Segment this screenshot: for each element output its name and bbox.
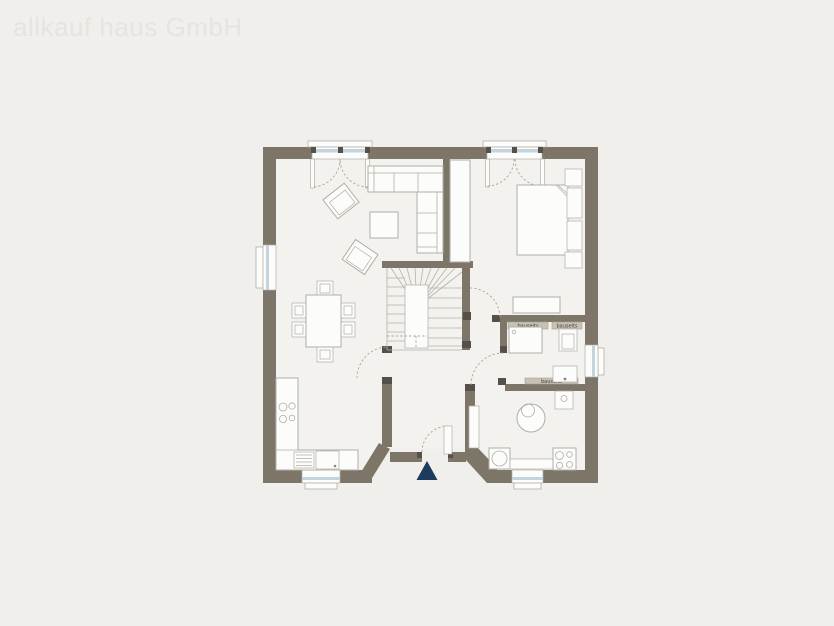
dining-chair xyxy=(341,322,355,337)
window-left-wall xyxy=(256,245,276,290)
window-bottom-utility xyxy=(512,470,543,489)
shower xyxy=(509,327,542,353)
utility-door-leaf xyxy=(469,406,479,448)
small-sink-unit xyxy=(555,391,573,409)
kitchen-sink xyxy=(294,451,339,469)
front-door-leaf xyxy=(444,426,452,454)
dining-chair xyxy=(317,281,333,296)
dining-table xyxy=(306,295,341,347)
stove xyxy=(553,448,576,470)
utility-counter xyxy=(510,459,553,469)
dining-chair xyxy=(292,322,306,337)
floor-plan-page: allkauf haus GmbH xyxy=(0,0,834,626)
floor-plan: bauseits bauseits bauseits xyxy=(0,0,834,626)
pillow xyxy=(567,221,582,250)
dresser xyxy=(513,297,560,313)
washing-machine xyxy=(489,448,510,469)
toilet xyxy=(559,329,577,351)
window-bottom-kitchen xyxy=(302,470,340,489)
washbasin xyxy=(553,366,577,382)
dining-chair xyxy=(292,303,306,318)
onsite-label: bauseits xyxy=(556,324,577,330)
window-right-wall xyxy=(585,345,604,377)
nightstand xyxy=(565,169,582,186)
stair-newel xyxy=(405,285,428,348)
water-heater xyxy=(517,404,545,432)
wardrobe xyxy=(450,160,470,262)
dining-chair xyxy=(317,347,333,362)
coffee-table xyxy=(370,212,398,238)
nightstand xyxy=(565,252,582,268)
dining-chair xyxy=(341,303,355,318)
pillow xyxy=(567,188,582,218)
